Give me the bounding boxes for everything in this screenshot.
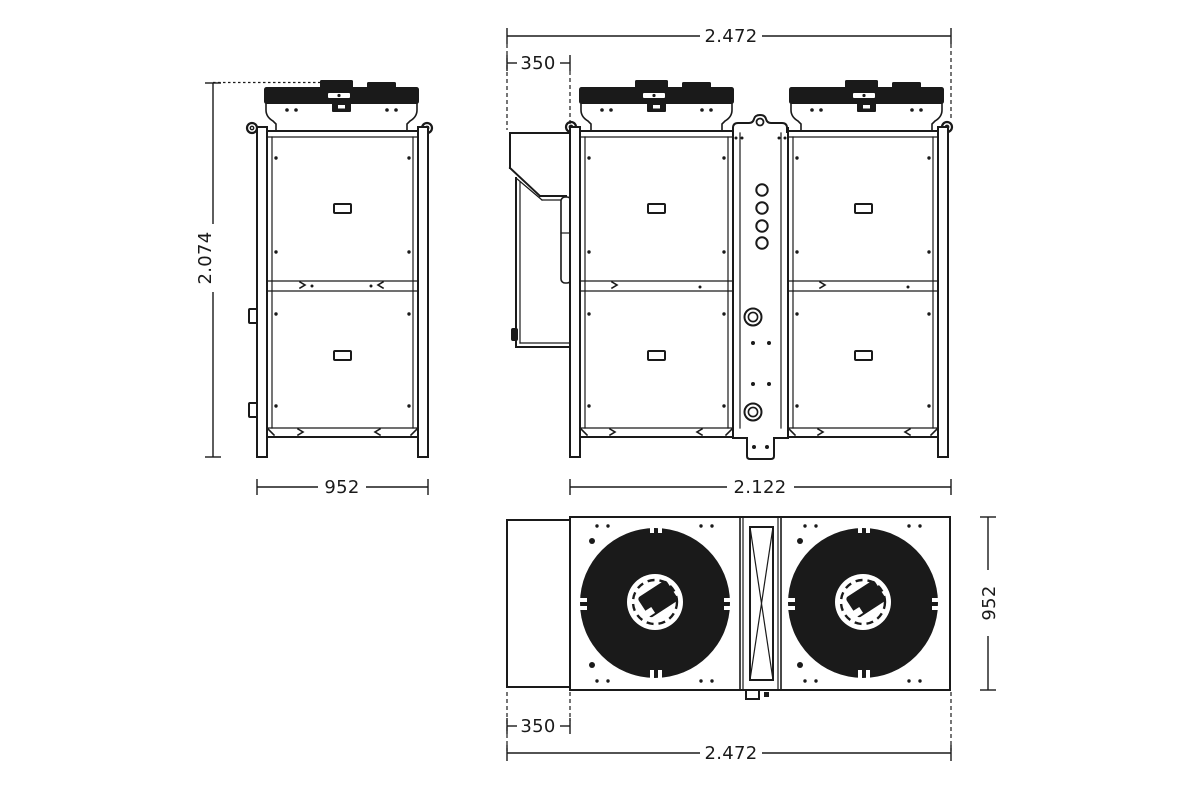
pipe-connection bbox=[745, 309, 762, 326]
dim-top-depth-label: 952 bbox=[979, 585, 1000, 620]
technical-drawing-page: 2.074 952 bbox=[0, 0, 1200, 800]
dim-top-duct-width: 350 bbox=[507, 716, 570, 737]
right-bay bbox=[788, 131, 938, 437]
dim-side-height-label: 2.074 bbox=[195, 231, 216, 284]
dim-top-depth: 952 bbox=[979, 517, 1000, 690]
front-view: 2.472 350 2.122 bbox=[507, 26, 952, 498]
center-column bbox=[733, 115, 788, 459]
dry-cooler-drawing: 2.074 952 bbox=[0, 0, 1200, 800]
pipe-connection bbox=[745, 404, 762, 421]
fan-shroud bbox=[789, 80, 944, 131]
left-bay bbox=[580, 131, 733, 437]
dim-top-total-width: 2.472 bbox=[507, 743, 951, 764]
leg bbox=[257, 127, 267, 457]
air-duct-top bbox=[507, 520, 570, 687]
leg bbox=[570, 127, 580, 457]
panel-handle bbox=[334, 351, 351, 360]
side-tab bbox=[249, 309, 257, 323]
dim-front-frame-width: 2.122 bbox=[570, 477, 951, 498]
dim-front-duct-width-label: 350 bbox=[520, 53, 555, 74]
dim-side-depth-label: 952 bbox=[324, 477, 359, 498]
panel-handle bbox=[648, 351, 665, 360]
mounting-tab bbox=[746, 690, 759, 699]
casing-frame bbox=[267, 131, 418, 437]
dim-front-total-width: 2.472 bbox=[507, 26, 951, 47]
fan-shroud bbox=[264, 80, 419, 131]
leg bbox=[418, 127, 428, 457]
lifting-eyelet-icon bbox=[247, 123, 257, 133]
side-view: 2.074 952 bbox=[195, 80, 432, 498]
sensor-ports bbox=[756, 184, 767, 248]
cross-brace bbox=[750, 527, 773, 680]
panel-handle bbox=[334, 204, 351, 213]
panel-handle bbox=[648, 204, 665, 213]
dim-side-depth: 952 bbox=[257, 477, 428, 498]
duct-bracket bbox=[511, 328, 518, 341]
rivets bbox=[268, 156, 417, 435]
panel-handle bbox=[855, 351, 872, 360]
dim-top-total-width-label: 2.472 bbox=[704, 743, 757, 764]
fan-shroud bbox=[579, 80, 734, 131]
top-view: 952 350 2.472 bbox=[507, 517, 1000, 764]
side-tab bbox=[249, 403, 257, 417]
leg bbox=[938, 127, 948, 457]
dim-top-duct-width-label: 350 bbox=[520, 716, 555, 737]
dim-front-total-width-label: 2.472 bbox=[704, 26, 757, 47]
dim-front-duct-width: 350 bbox=[507, 53, 570, 74]
dim-front-frame-width-label: 2.122 bbox=[733, 477, 786, 498]
air-duct bbox=[510, 133, 573, 347]
center-foot bbox=[733, 438, 788, 459]
panel-handle bbox=[855, 204, 872, 213]
